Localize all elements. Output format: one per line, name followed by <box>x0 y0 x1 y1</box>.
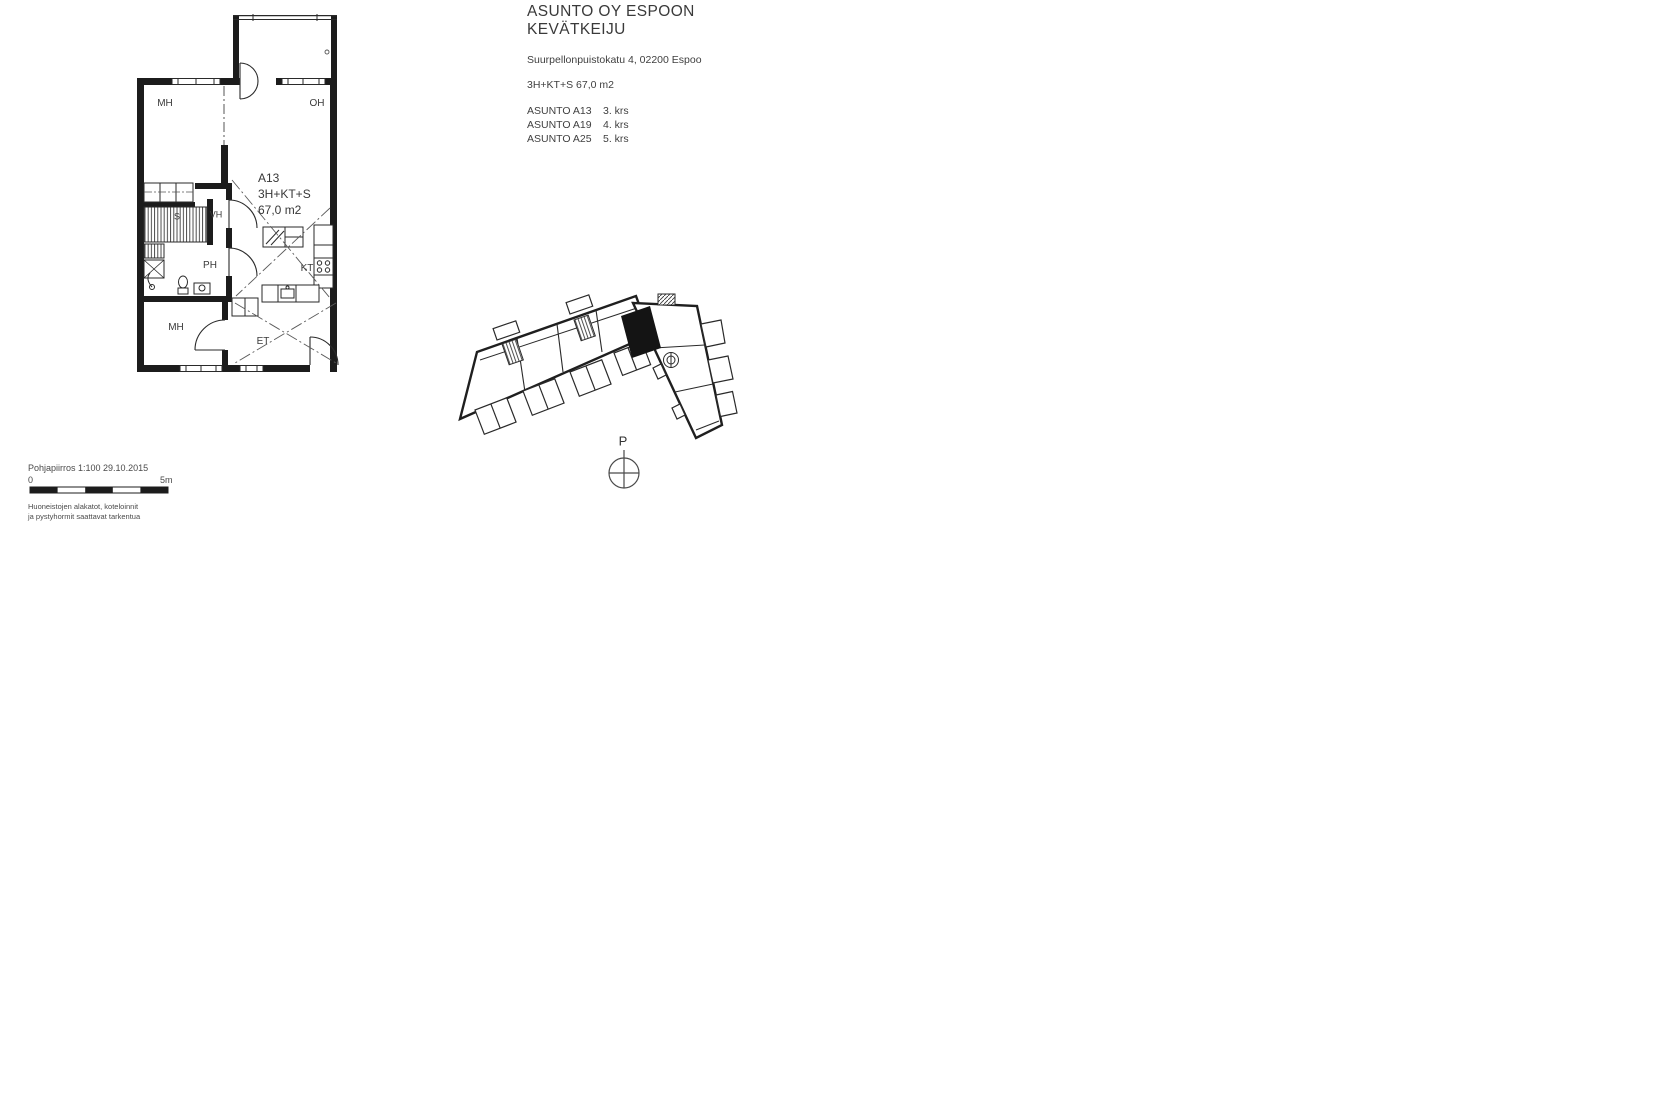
balcony <box>233 14 337 78</box>
sheet-title-line2: KEVÄTKEIJU <box>527 22 626 38</box>
room-label-mh-bottom: MH <box>168 323 184 333</box>
room-label-sauna: S <box>174 213 180 222</box>
scale-start: 0 <box>28 476 33 485</box>
apartment-list-row: ASUNTO A13 3. krs <box>527 105 697 117</box>
floor-plan-sheet: ASUNTO OY ESPOON KEVÄTKEIJU Suurpellonpu… <box>0 0 1680 1120</box>
balcony-door <box>240 63 258 99</box>
apartment-floor: 3. krs <box>603 105 629 117</box>
room-label-oh: OH <box>310 99 325 109</box>
sheet-title-line1: ASUNTO OY ESPOON <box>527 4 695 20</box>
north-label: P <box>619 435 628 448</box>
apartment-floor: 4. krs <box>603 119 629 131</box>
drawing-canvas <box>0 0 1680 1120</box>
vh-door <box>229 200 257 228</box>
kitchen-fixtures <box>262 225 333 302</box>
plan-apartment-type: 3H+KT+S <box>258 188 311 200</box>
apartment-name: ASUNTO A19 <box>527 119 603 131</box>
apartment-name: ASUNTO A13 <box>527 105 603 117</box>
window <box>282 78 325 85</box>
wardrobe-et <box>232 298 258 316</box>
window <box>172 78 220 85</box>
mh-door <box>195 320 225 350</box>
apartment-type: 3H+KT+S 67,0 m2 <box>527 80 614 91</box>
sink-icon <box>194 283 210 294</box>
plan-apartment-area: 67,0 m2 <box>258 204 301 216</box>
scale-end: 5m <box>160 476 173 485</box>
room-label-kt: KT <box>301 264 314 274</box>
ph-door <box>229 248 257 276</box>
cabinet-run <box>314 225 333 288</box>
disclaimer-line1: Huoneistojen alakatot, koteloinnit <box>28 503 138 511</box>
room-label-vh: VH <box>210 211 223 220</box>
apartment-floor: 5. krs <box>603 133 629 145</box>
apartment-list-row: ASUNTO A19 4. krs <box>527 119 697 131</box>
room-label-mh-top: MH <box>157 99 173 109</box>
room-label-et: ET <box>257 337 270 347</box>
toilet-icon <box>178 276 188 294</box>
shower-cabin <box>144 260 164 278</box>
north-compass-icon <box>609 450 639 488</box>
scale-caption: Pohjapiirros 1:100 29.10.2015 <box>28 464 148 473</box>
entry-canopy <box>566 295 593 314</box>
room-label-ph: PH <box>203 261 217 271</box>
balcony-drain-icon <box>325 50 329 54</box>
address: Suurpellonpuistokatu 4, 02200 Espoo <box>527 55 702 66</box>
stair-core <box>658 294 675 305</box>
site-plan-drawing <box>460 294 737 438</box>
apartment-name: ASUNTO A25 <box>527 133 603 145</box>
counter-sink <box>262 285 319 302</box>
apartment-list-row: ASUNTO A25 5. krs <box>527 133 697 145</box>
scale-bar <box>30 487 168 493</box>
window <box>180 365 222 372</box>
window <box>240 365 263 372</box>
disclaimer-line2: ja pystyhormit saattavat tarkentua <box>28 513 140 521</box>
plan-apartment-id: A13 <box>258 172 279 184</box>
wardrobe-mh-top <box>144 183 193 202</box>
